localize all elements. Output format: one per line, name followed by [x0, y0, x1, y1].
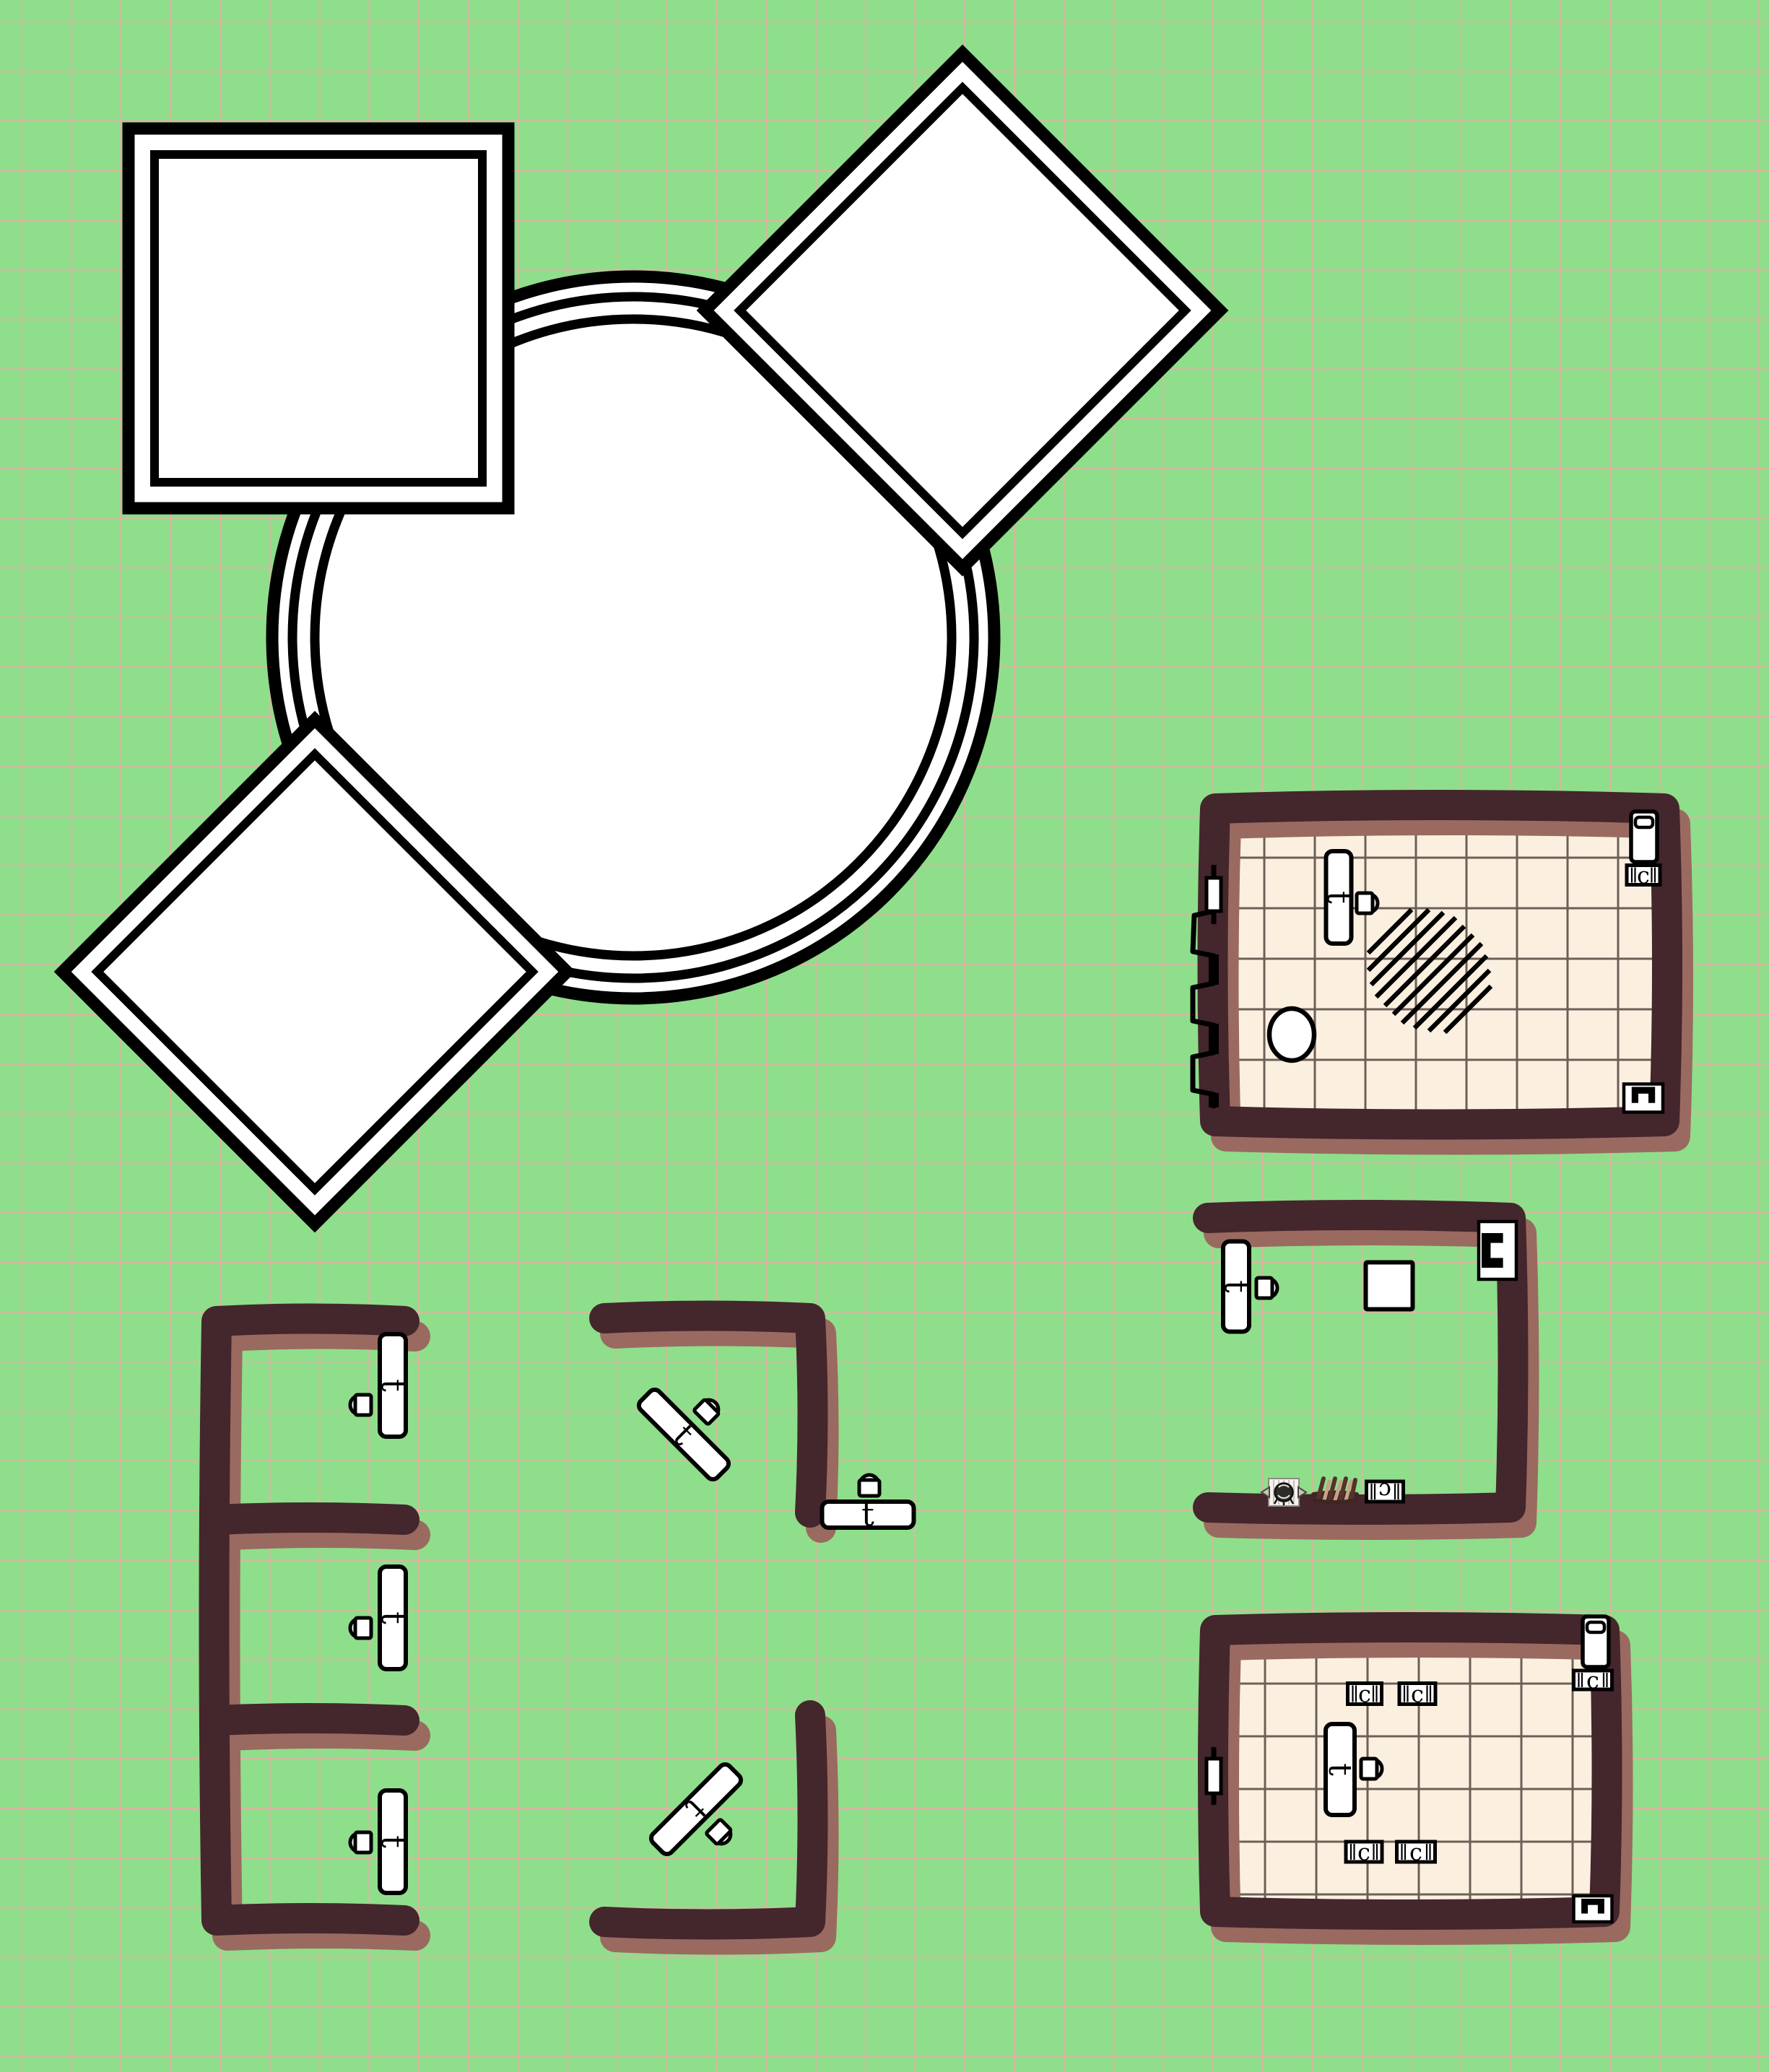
table-icon[interactable]: t: [374, 1334, 411, 1437]
bed-icon[interactable]: [1631, 811, 1657, 862]
map-canvas[interactable]: tttttttttccccccc: [0, 0, 1769, 2072]
chest-icon[interactable]: c: [1397, 1839, 1435, 1866]
chest-label: c: [1411, 1681, 1424, 1708]
chest-icon[interactable]: c: [1574, 1667, 1612, 1694]
table-icon[interactable]: t: [374, 1790, 411, 1893]
chest-icon[interactable]: c: [1348, 1681, 1382, 1708]
well-icon[interactable]: [1269, 1009, 1314, 1061]
chest-icon[interactable]: c: [1627, 862, 1660, 889]
chest-label: c: [1409, 1839, 1422, 1866]
table-label: t: [374, 1835, 411, 1848]
table-icon[interactable]: t: [822, 1497, 914, 1533]
room-floor[interactable]: [1219, 1634, 1601, 1908]
chair-icon[interactable]: [1256, 1278, 1277, 1298]
table-label: t: [374, 1379, 411, 1392]
chair-icon[interactable]: [859, 1475, 879, 1496]
table-icon[interactable]: t: [1321, 1724, 1358, 1815]
chest-icon[interactable]: c: [1367, 1477, 1404, 1505]
chair-icon[interactable]: [1361, 1759, 1382, 1779]
chest-label: c: [1586, 1667, 1599, 1694]
chest-label: c: [1358, 1681, 1371, 1708]
chair-icon[interactable]: [350, 1395, 371, 1415]
table-label: t: [861, 1497, 874, 1533]
table-label: t: [1320, 891, 1357, 904]
lodge-room-se: [1213, 1627, 1618, 1930]
fireplace-icon[interactable]: [1574, 1896, 1612, 1922]
table-label: t: [1321, 1763, 1358, 1776]
square-room-nw[interactable]: [129, 129, 508, 508]
chest-label: c: [1357, 1839, 1370, 1866]
chest-icon[interactable]: c: [1346, 1839, 1382, 1866]
trap-icon[interactable]: [1261, 1479, 1306, 1506]
table-label: t: [374, 1611, 411, 1624]
lodge-room-ne: [1213, 805, 1679, 1140]
chair-icon[interactable]: [350, 1832, 371, 1853]
chest-label: c: [1637, 862, 1650, 889]
fireplace-icon[interactable]: [1624, 1084, 1663, 1113]
table-icon[interactable]: t: [1217, 1242, 1254, 1332]
crate-icon[interactable]: [1366, 1263, 1413, 1310]
table-label: t: [1217, 1280, 1254, 1293]
chair-icon[interactable]: [1357, 893, 1378, 913]
table-icon[interactable]: t: [1320, 851, 1357, 944]
chest-label: c: [1378, 1477, 1391, 1505]
table-icon[interactable]: t: [374, 1567, 411, 1669]
bed-icon[interactable]: [1583, 1616, 1609, 1667]
map-svg[interactable]: tttttttttccccccc: [0, 0, 1769, 2072]
fireplace-icon[interactable]: [1479, 1222, 1516, 1279]
chest-icon[interactable]: c: [1399, 1681, 1435, 1708]
chair-icon[interactable]: [350, 1618, 371, 1638]
